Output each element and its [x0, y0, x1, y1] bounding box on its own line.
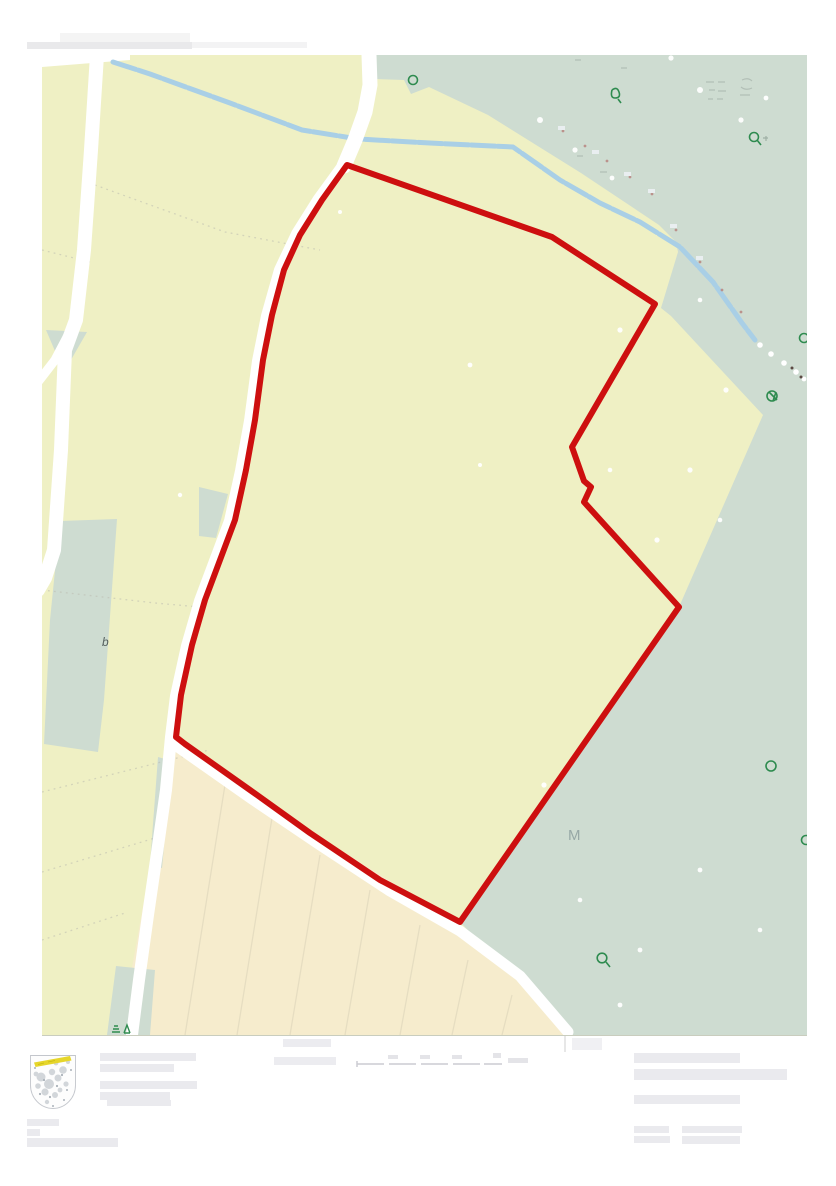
svg-text:M: M — [568, 827, 581, 844]
svg-text:b: b — [102, 635, 109, 649]
